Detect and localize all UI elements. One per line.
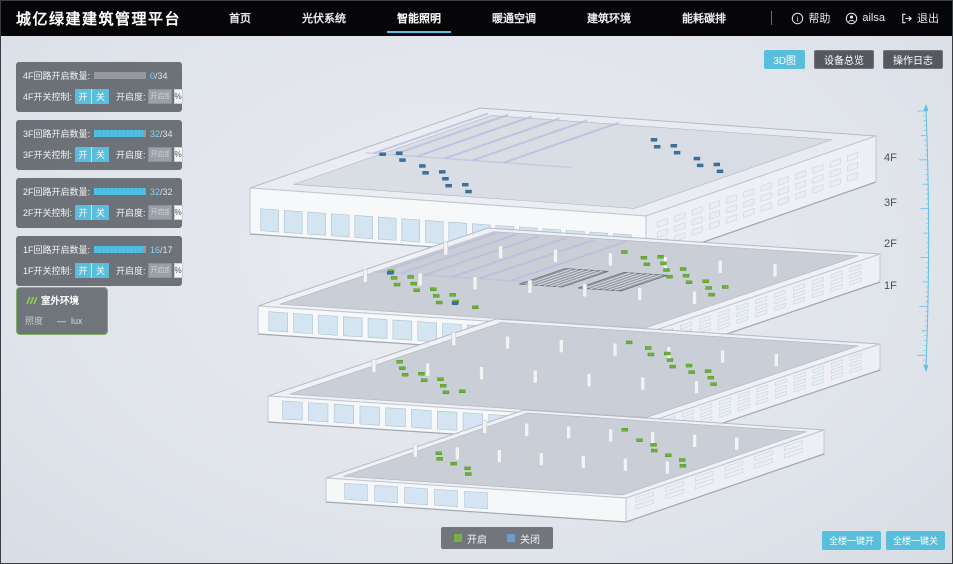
- floor-panel-4f: 4F回路开启数量: 0/34 4F开关控制: 开 关 开启度: %: [16, 62, 182, 112]
- dim-input[interactable]: [148, 205, 172, 220]
- floor-label-2f[interactable]: 2F: [884, 238, 897, 250]
- circuit-count-value: 16/17: [150, 245, 173, 255]
- logout-label: 退出: [917, 10, 939, 26]
- floor-panel-3f: 3F回路开启数量: 32/34 3F开关控制: 开 关 开启度: %: [16, 120, 182, 170]
- percent-button[interactable]: %: [174, 147, 183, 162]
- dim-input[interactable]: [148, 147, 172, 162]
- floor-label-1f[interactable]: 1F: [884, 280, 897, 292]
- switch-group: 开 关: [75, 89, 109, 104]
- all-on-button[interactable]: 全楼一键开: [822, 531, 881, 550]
- user-icon: [845, 12, 858, 25]
- device-overview-button[interactable]: 设备总览: [814, 50, 874, 69]
- view-toolbar: 3D图 设备总览 操作日志: [764, 50, 943, 69]
- switch-off-button[interactable]: 关: [92, 263, 109, 278]
- building-3d-view[interactable]: [228, 96, 884, 526]
- floor-label-4f[interactable]: 4F: [884, 152, 897, 164]
- switch-group: 开 关: [75, 263, 109, 278]
- circuit-count-label: 2F回路开启数量:: [23, 185, 90, 198]
- help-icon: i: [791, 12, 804, 25]
- dim-input[interactable]: [148, 89, 172, 104]
- circuit-count-label: 3F回路开启数量:: [23, 127, 90, 140]
- topbar-right: i 帮助 ailsa 退出: [771, 10, 953, 26]
- floor-scale-ruler[interactable]: [912, 102, 938, 374]
- outdoor-env-title: 室外环境: [41, 293, 79, 307]
- all-off-button[interactable]: 全楼一键关: [886, 531, 945, 550]
- dim-label: 开启度:: [116, 148, 146, 161]
- dim-label: 开启度:: [116, 206, 146, 219]
- operation-log-button[interactable]: 操作日志: [883, 50, 943, 69]
- main-nav: 首页 光伏系统 智能照明 暖通空调 建筑环境 能耗碳排: [227, 0, 728, 38]
- circuit-count-label: 4F回路开启数量:: [23, 69, 90, 82]
- logout-button[interactable]: 退出: [900, 10, 939, 26]
- illuminance-value: —: [57, 316, 66, 326]
- switch-group: 开 关: [75, 147, 109, 162]
- percent-button[interactable]: %: [174, 205, 183, 220]
- nav-building-env[interactable]: 建筑环境: [585, 0, 633, 38]
- circuit-progress-bar: [94, 72, 146, 79]
- circuit-count-value: 0/34: [150, 71, 168, 81]
- switch-off-button[interactable]: 关: [92, 205, 109, 220]
- nav-pv-system[interactable]: 光伏系统: [300, 0, 348, 38]
- help-label: 帮助: [808, 10, 830, 26]
- illuminance-label: 照度: [25, 314, 43, 327]
- floor-panel-2f: 2F回路开启数量: 32/32 2F开关控制: 开 关 开启度: %: [16, 178, 182, 228]
- circuit-progress-bar: [94, 130, 146, 137]
- legend-off: 关闭: [507, 531, 540, 546]
- switch-on-button[interactable]: 开: [75, 205, 92, 220]
- switch-on-button[interactable]: 开: [75, 263, 92, 278]
- percent-button[interactable]: %: [174, 263, 183, 278]
- legend-on: 开启: [454, 531, 487, 546]
- nav-energy-carbon[interactable]: 能耗碳排: [680, 0, 728, 38]
- svg-text:i: i: [797, 14, 799, 23]
- circuit-count-value: 32/34: [150, 129, 173, 139]
- platform-title: 城亿绿建建筑管理平台: [0, 8, 197, 29]
- outdoor-env-icon: [25, 296, 37, 305]
- nav-home[interactable]: 首页: [227, 0, 253, 38]
- switch-control-label: 1F开关控制:: [23, 264, 72, 277]
- switch-group: 开 关: [75, 205, 109, 220]
- nav-smart-lighting[interactable]: 智能照明: [395, 0, 443, 38]
- dim-label: 开启度:: [116, 90, 146, 103]
- topbar-divider: [771, 11, 772, 25]
- view-3d-button[interactable]: 3D图: [764, 50, 805, 69]
- dim-input[interactable]: [148, 263, 172, 278]
- switch-off-button[interactable]: 关: [92, 89, 109, 104]
- legend-on-label: 开启: [467, 531, 487, 546]
- legend-off-swatch: [507, 534, 515, 542]
- illuminance-unit: lux: [71, 316, 83, 326]
- floor-label-3f[interactable]: 3F: [884, 197, 897, 209]
- light-status-legend: 开启 关闭: [441, 527, 553, 549]
- circuit-count-label: 1F回路开启数量:: [23, 243, 90, 256]
- top-navigation-bar: 城亿绿建建筑管理平台 首页 光伏系统 智能照明 暖通空调 建筑环境 能耗碳排 i…: [0, 0, 953, 36]
- logout-icon: [900, 12, 913, 25]
- switch-control-label: 3F开关控制:: [23, 148, 72, 161]
- switch-control-label: 4F开关控制:: [23, 90, 72, 103]
- switch-control-label: 2F开关控制:: [23, 206, 72, 219]
- user-name: ailsa: [862, 12, 885, 24]
- dim-label: 开启度:: [116, 264, 146, 277]
- main-3d-stage: 城亿绿建建筑管理平台 首页 光伏系统 智能照明 暖通空调 建筑环境 能耗碳排 i…: [0, 0, 953, 564]
- circuit-count-value: 32/32: [150, 187, 173, 197]
- user-menu[interactable]: ailsa: [845, 12, 885, 25]
- outdoor-environment-panel: 室外环境 照度 — lux: [16, 287, 108, 335]
- switch-on-button[interactable]: 开: [75, 147, 92, 162]
- legend-on-swatch: [454, 534, 462, 542]
- circuit-progress-bar: [94, 188, 146, 195]
- whole-building-actions: 全楼一键开 全楼一键关: [822, 531, 945, 550]
- legend-off-label: 关闭: [520, 531, 540, 546]
- circuit-progress-bar: [94, 246, 146, 253]
- switch-on-button[interactable]: 开: [75, 89, 92, 104]
- nav-hvac[interactable]: 暖通空调: [490, 0, 538, 38]
- help-button[interactable]: i 帮助: [791, 10, 830, 26]
- percent-button[interactable]: %: [174, 89, 183, 104]
- switch-off-button[interactable]: 关: [92, 147, 109, 162]
- floor-panel-1f: 1F回路开启数量: 16/17 1F开关控制: 开 关 开启度: %: [16, 236, 182, 286]
